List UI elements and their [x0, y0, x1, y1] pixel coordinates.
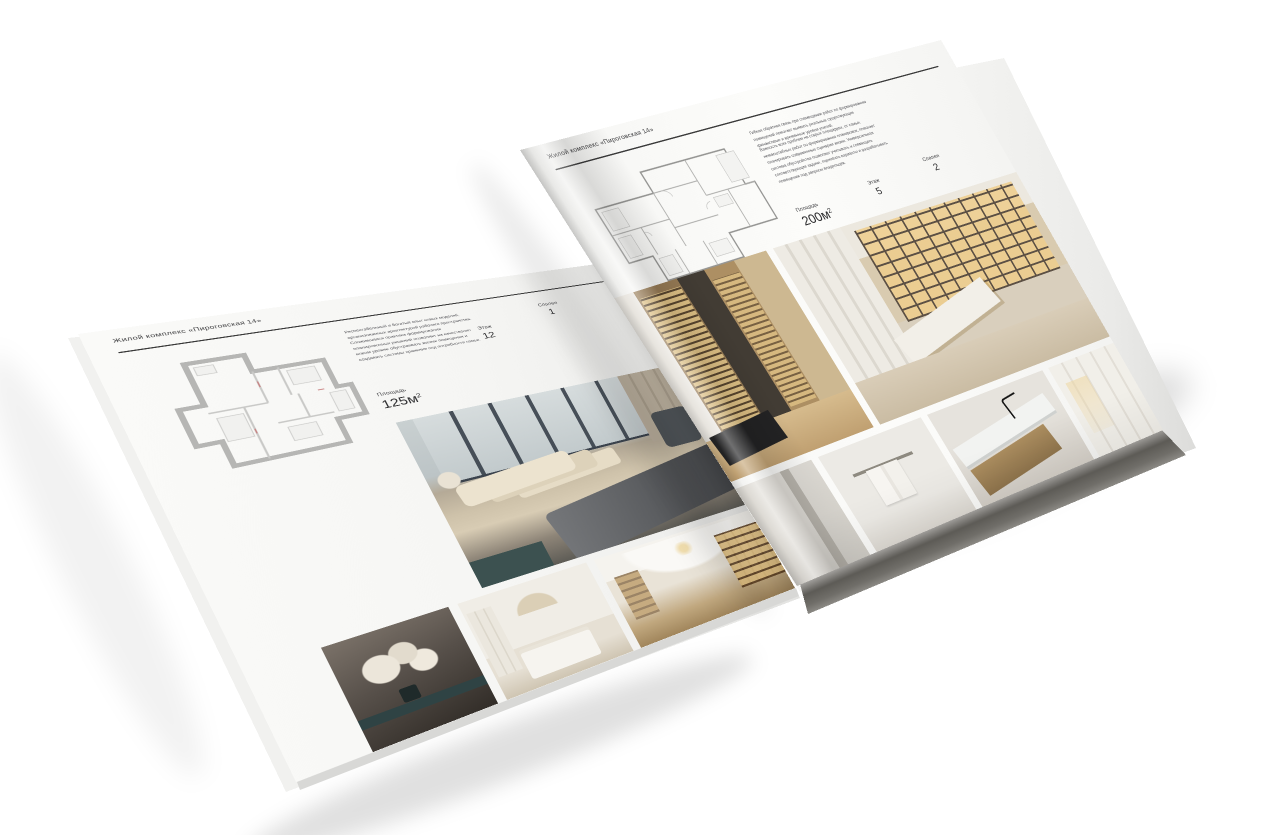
- stat-area-left: Площадь 125м2: [376, 385, 426, 412]
- brochure-mockup-scene: Жилой комплекс «Пироговская 14» Респекта…: [0, 0, 1280, 835]
- right-page-header: Жилой комплекс «Пироговская 14»: [546, 126, 656, 161]
- plan-furniture: [192, 347, 365, 453]
- plan-inner-walls: [192, 362, 349, 466]
- stat-bedrooms-right: Спален 2: [913, 150, 955, 178]
- floor-plan-left: [129, 333, 389, 494]
- stat-bedrooms-left: Спален 1: [528, 299, 573, 320]
- stat-floor-right: Этаж 5: [855, 174, 898, 202]
- left-page-header: Жилой комплекс «Пироговская 14»: [111, 318, 262, 345]
- stat-area-right: Площадь 200м2: [794, 198, 837, 229]
- white-flowers: [344, 629, 447, 696]
- left-description: Респектабельный и богатый опыт новых мод…: [343, 311, 485, 363]
- plan-door-arcs: [625, 181, 719, 238]
- fan-wall-decor: [506, 584, 560, 618]
